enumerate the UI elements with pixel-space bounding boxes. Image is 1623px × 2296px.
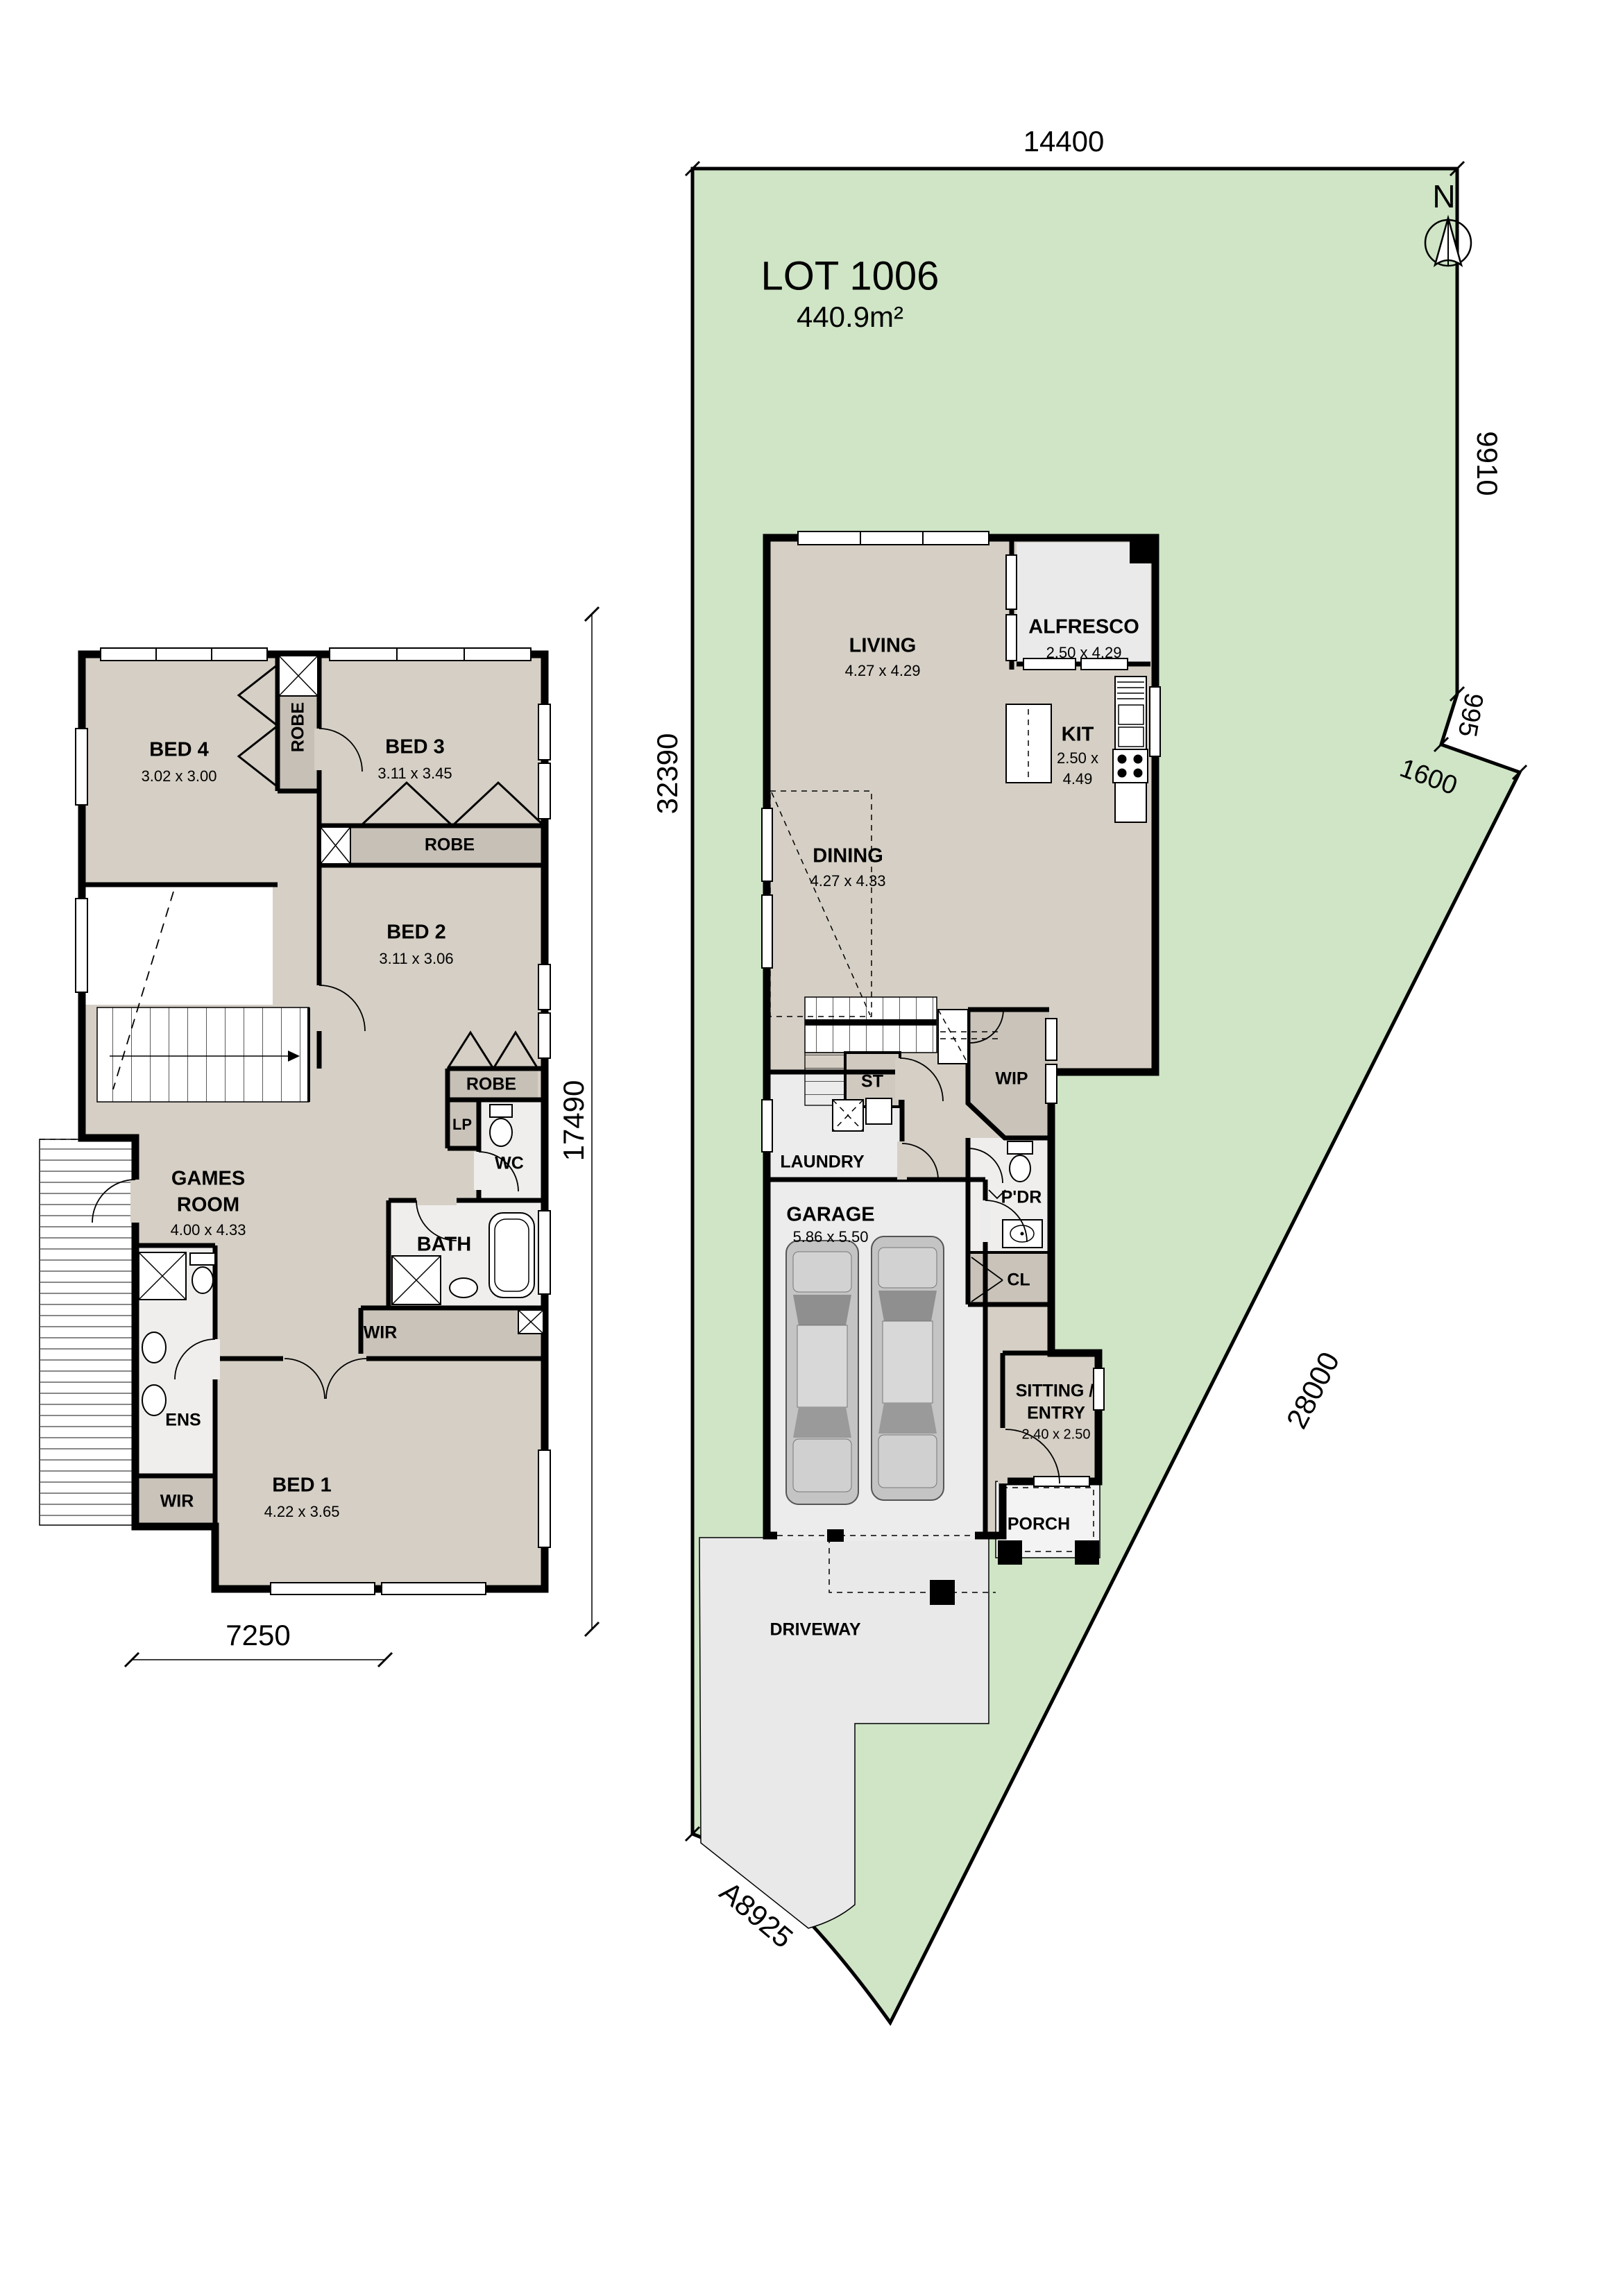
ens-basin-2 [142, 1385, 166, 1415]
room-label-kit: KIT [1062, 724, 1094, 746]
plan-drawing: LOT 1006 440.9m² N 14400 9910 995 1600 2… [0, 0, 1623, 2296]
room-dims-sitting: 2.40 x 2.50 [1022, 1427, 1091, 1442]
car-left [786, 1241, 858, 1504]
room-label-wc: WC [495, 1154, 524, 1173]
balcony [40, 1139, 135, 1525]
alfresco-pier [1130, 538, 1155, 563]
room-label-driveway: DRIVEWAY [770, 1620, 860, 1640]
room-dims-games: 4.00 x 4.33 [171, 1221, 246, 1239]
room-dims-kit-1: 2.50 x [1057, 749, 1098, 767]
room-dims-kit-2: 4.49 [1063, 770, 1093, 788]
room-dims-garage: 5.86 x 5.50 [793, 1228, 869, 1245]
ens-basin-1 [142, 1332, 166, 1363]
wc-toilet-icon [490, 1105, 512, 1117]
room-label-st: ST [861, 1072, 883, 1091]
toilet-icon [1008, 1141, 1033, 1154]
room-label-laundry: LAUNDRY [780, 1153, 865, 1172]
car-right [872, 1236, 944, 1500]
room-label-sitting-1: SITTING / [1016, 1381, 1094, 1401]
room-label-bed2: BED 2 [386, 921, 445, 944]
room-dims-dining: 4.27 x 4.33 [810, 872, 886, 890]
lot-title: LOT 1006 [761, 253, 940, 298]
upper-floor-plan: BED 4 3.02 x 3.00 ROBE BED 3 3.11 x 3.45… [40, 607, 599, 1667]
stove-icon [1113, 749, 1148, 783]
room-label-alfresco: ALFRESCO [1028, 616, 1139, 638]
porch-pier-right [1075, 1540, 1099, 1565]
room-label-sitting-2: ENTRY [1027, 1404, 1085, 1423]
room-label-dining: DINING [813, 845, 883, 867]
room-label-bed3: BED 3 [385, 736, 444, 758]
lot-area: 440.9m² [797, 300, 903, 333]
room-label-lp: LP [452, 1116, 472, 1133]
fp-stairs [97, 1007, 309, 1102]
room-label-robe2: ROBE [466, 1075, 516, 1094]
room-label-wir-bed1: WIR [160, 1492, 194, 1511]
room-label-robe4: ROBE [289, 702, 308, 752]
room-label-bed1: BED 1 [272, 1474, 331, 1497]
dim-top: 14400 [1023, 125, 1105, 158]
room-label-garage: GARAGE [786, 1204, 874, 1226]
room-label-wir-main: WIR [364, 1323, 398, 1343]
room-label-living: LIVING [849, 635, 917, 657]
room-label-games-2: ROOM [177, 1194, 239, 1216]
eave-pier [930, 1580, 955, 1605]
floorplan-sheet: LOT 1006 440.9m² N 14400 9910 995 1600 2… [0, 0, 1623, 2296]
dim-right: 9910 [1471, 431, 1504, 495]
room-dims-bed2: 3.11 x 3.06 [379, 950, 453, 967]
basin-icon [450, 1278, 477, 1298]
room-dims-alfresco: 2.50 x 4.29 [1046, 644, 1122, 661]
ens-toilet-icon [190, 1253, 215, 1265]
room-dims-bed4: 3.02 x 3.00 [142, 767, 217, 785]
room-label-games-1: GAMES [171, 1168, 245, 1190]
dim-left: 32390 [651, 733, 683, 815]
room-label-pdr: P'DR [1001, 1188, 1042, 1207]
room-dims-bed3: 3.11 x 3.45 [377, 765, 452, 782]
room-label-bed4: BED 4 [149, 739, 208, 761]
room-label-wip: WIP [995, 1069, 1028, 1089]
room-label-ens: ENS [165, 1411, 201, 1430]
fp-dim-width: 7250 [226, 1619, 290, 1651]
porch-pier-left [998, 1540, 1022, 1565]
site-plan: LOT 1006 440.9m² N 14400 9910 995 1600 2… [651, 125, 1527, 2023]
north-label: N [1432, 178, 1455, 214]
room-label-porch: PORCH [1008, 1515, 1070, 1534]
room-label-cl: CL [1007, 1270, 1030, 1290]
fp-void [85, 887, 273, 1005]
room-dims-bed1: 4.22 x 3.65 [264, 1503, 340, 1520]
fp-dim-height: 17490 [557, 1080, 590, 1162]
dim-diagonal: 28000 [1280, 1347, 1346, 1434]
room-label-bath: BATH [417, 1234, 471, 1256]
room-label-robe3: ROBE [425, 835, 475, 855]
room-dims-living: 4.27 x 4.29 [845, 662, 921, 679]
